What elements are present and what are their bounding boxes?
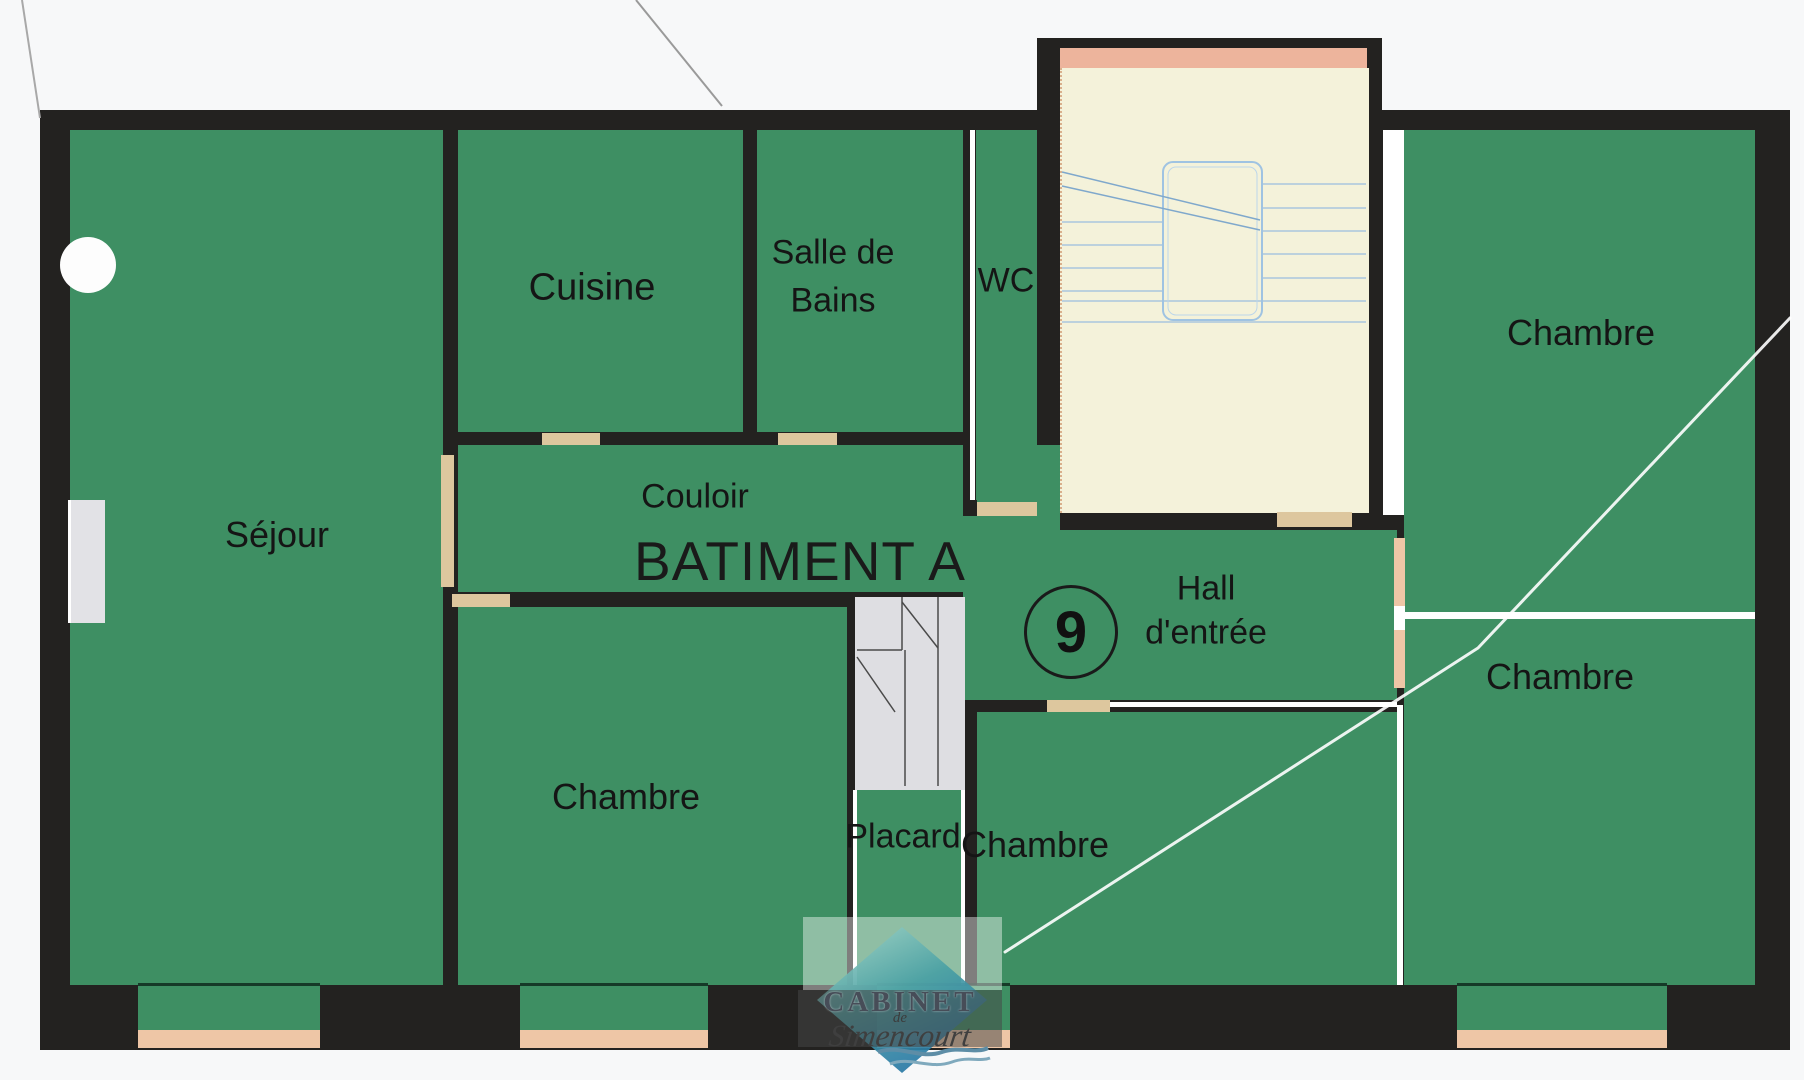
stair-right-strip — [1383, 130, 1404, 515]
label-chambre-bottom-left: Chambre — [552, 776, 700, 818]
hall-bottom-divider — [1110, 702, 1397, 707]
window-chambre-bl-sill — [520, 1030, 708, 1048]
window-chambre-bl — [520, 985, 708, 1030]
label-batiment: BATIMENT A — [634, 529, 966, 593]
door-chambre-bottom-left — [452, 594, 510, 607]
floor-plan-page: Séjour Cuisine Salle de Bains WC Couloir… — [0, 0, 1804, 1080]
punch-hole — [60, 237, 116, 293]
room-chambre-top-right — [1404, 130, 1755, 613]
hall-door-gap — [1394, 606, 1405, 630]
label-hall-1: Hall — [1177, 570, 1236, 609]
door-sejour-couloir — [441, 455, 454, 587]
label-placard: Placard — [845, 818, 960, 857]
label-wc: WC — [978, 262, 1035, 301]
window-sejour — [138, 985, 320, 1030]
staircase-area — [1060, 68, 1369, 513]
window-chambre-mr-line — [1457, 983, 1667, 986]
window-sejour-line — [138, 983, 320, 986]
label-salle-de-bains-1: Salle de — [772, 234, 895, 273]
window-chambre-mr — [1457, 985, 1667, 1030]
door-hall-chambre-mid-right — [1394, 630, 1405, 688]
stair-top-window — [1060, 48, 1367, 68]
door-hall-chambre-top-right — [1394, 538, 1405, 606]
right-rooms-divider — [1404, 612, 1755, 619]
unit-number: 9 — [1055, 599, 1087, 666]
label-cuisine: Cuisine — [529, 267, 656, 310]
room-sejour — [70, 130, 443, 985]
label-sejour: Séjour — [225, 514, 329, 556]
door-wc — [977, 502, 1037, 516]
door-salle-de-bains — [778, 433, 837, 445]
label-chambre-mid-right: Chambre — [1486, 656, 1634, 698]
door-hall-chambre-bottom — [1047, 700, 1110, 712]
window-chambre-bl-line — [520, 983, 708, 986]
label-chambre-bottom-center: Chambre — [961, 824, 1109, 866]
bottom-center-right-divider — [1397, 705, 1403, 985]
label-hall-2: d'entrée — [1145, 614, 1267, 653]
label-salle-de-bains-2: Bains — [790, 282, 875, 321]
window-chambre-mr-sill — [1457, 1030, 1667, 1048]
placard-closet — [855, 597, 965, 790]
logo-simencourt-text: Simencourt — [785, 1018, 1014, 1054]
window-sejour-sill — [138, 1030, 320, 1048]
window-sejour-left — [68, 500, 105, 623]
label-couloir: Couloir — [641, 478, 749, 517]
label-chambre-top-right: Chambre — [1507, 312, 1655, 354]
door-stair-hall — [1277, 512, 1352, 527]
door-cuisine — [542, 433, 600, 445]
wc-wall-gap — [970, 130, 975, 500]
unit-number-badge: 9 — [1024, 585, 1118, 679]
